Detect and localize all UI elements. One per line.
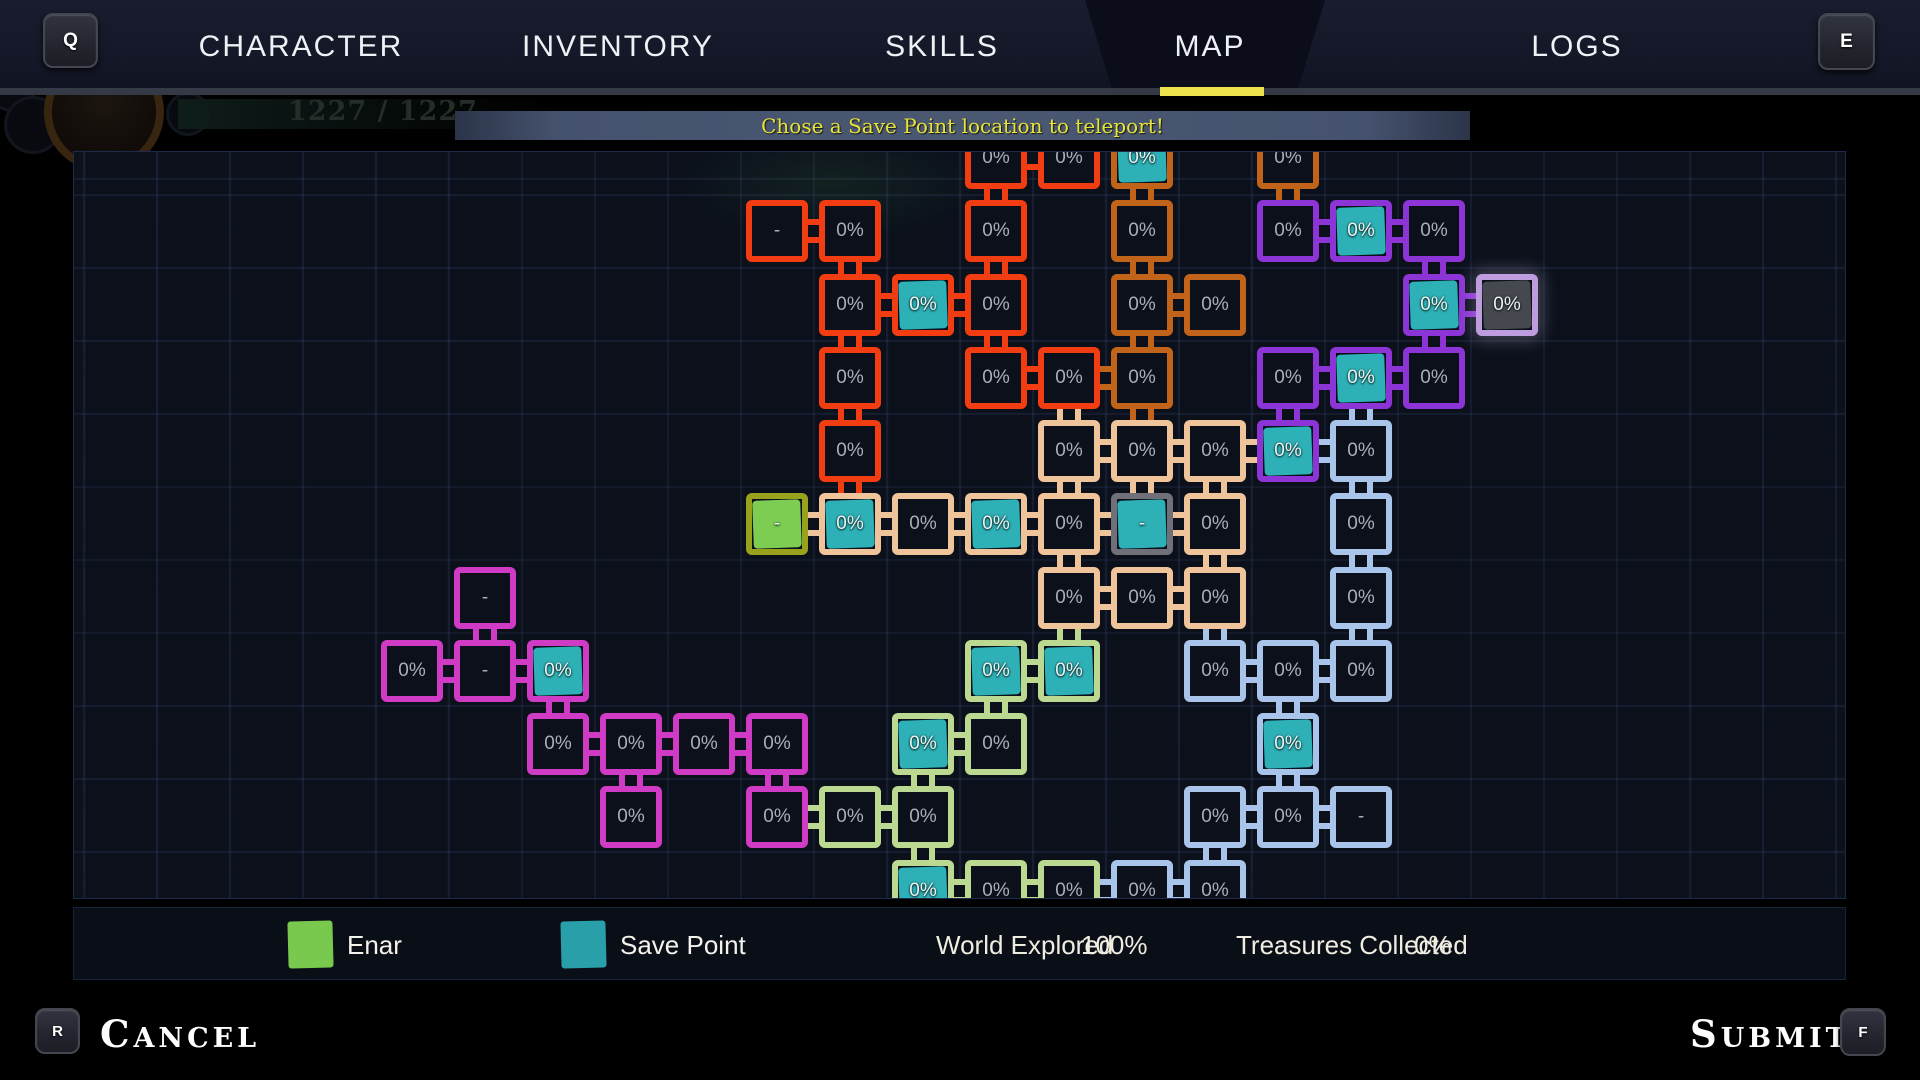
tab-logs[interactable]: LOGS [1531,30,1622,64]
room-explored-percent: 0% [892,860,954,900]
map-panel: 0%0%0%0%-0%0%0%0%0%0%0%0%0%0%0%0%0%0%0%0… [73,151,1846,899]
room-explored-percent: 0% [1038,567,1100,629]
map-room: 0% [1111,200,1173,262]
room-explored-percent: 0% [965,347,1027,409]
room-explored-percent: 0% [1257,420,1319,482]
key-hint-e[interactable]: E [1818,13,1875,70]
room-explored-percent: 0% [1111,200,1173,262]
room-explored-percent: 0% [892,274,954,336]
tab-map[interactable]: MAP [1174,30,1245,64]
room-explored-percent: 0% [1111,274,1173,336]
room-explored-percent: 0% [1330,640,1392,702]
room-explored-percent: 0% [1184,567,1246,629]
world-explored-value: 100% [1081,930,1148,961]
room-explored-percent: 0% [1403,347,1465,409]
map-room: 0% [819,786,881,848]
map-room: 0% [965,200,1027,262]
message-text: Chose a Save Point location to teleport! [761,114,1164,138]
room-explored-percent: 0% [1330,567,1392,629]
map-room: 0% [892,493,954,555]
map-room-save-point[interactable]: 0% [1257,420,1319,482]
room-explored-percent: 0% [1038,640,1100,702]
room-explored-percent: 0% [1184,640,1246,702]
map-room: 0% [673,713,735,775]
room-explored-percent: 0% [673,713,735,775]
room-explored-percent: 0% [892,493,954,555]
enar-legend-label: Enar [347,930,402,961]
room-explored-percent: 0% [1330,493,1392,555]
map-room: 0% [1184,274,1246,336]
map-room-save-point[interactable]: 0% [527,640,589,702]
map-room: 0% [1257,347,1319,409]
room-explored-percent: 0% [527,640,589,702]
top-nav-bar: CHARACTERINVENTORYSKILLSMAPLOGS [0,0,1920,95]
room-explored-percent: 0% [1330,420,1392,482]
map-room: - [1330,786,1392,848]
cancel-button[interactable]: CANCEL [100,1012,260,1056]
tab-skills[interactable]: SKILLS [885,30,999,64]
map-room: 0% [1111,860,1173,900]
room-explored-percent: - [746,493,808,555]
room-explored-percent: 0% [1184,860,1246,900]
map-room-save-point[interactable]: 0% [1330,347,1392,409]
room-explored-percent: 0% [1257,200,1319,262]
mp-value: 1227 / 1227 [288,96,478,127]
map-room-selected[interactable]: 0% [1476,274,1538,336]
room-explored-percent: 0% [965,200,1027,262]
room-explored-percent: 0% [1038,860,1100,900]
map-room: 0% [1111,420,1173,482]
map-room: 0% [965,151,1027,189]
room-explored-percent: 0% [1038,347,1100,409]
map-room: 0% [1184,493,1246,555]
map-room-save-point[interactable]: - [1111,493,1173,555]
room-explored-percent: 0% [965,274,1027,336]
map-room: 0% [819,274,881,336]
map-room: 0% [819,420,881,482]
room-explored-percent: - [454,567,516,629]
room-explored-percent: 0% [1184,786,1246,848]
map-room-enar: - [746,493,808,555]
map-room-save-point[interactable]: 0% [819,493,881,555]
map-room: 0% [892,786,954,848]
room-explored-percent: - [1111,493,1173,555]
key-hint-q[interactable]: Q [43,13,98,68]
map-room: 0% [965,347,1027,409]
map-room: 0% [1038,420,1100,482]
room-explored-percent: 0% [892,786,954,848]
map-room: 0% [1330,493,1392,555]
room-explored-percent: 0% [965,151,1027,189]
room-explored-percent: - [454,640,516,702]
room-explored-percent: 0% [965,640,1027,702]
map-room: - [746,200,808,262]
map-room: 0% [1330,420,1392,482]
tab-character[interactable]: CHARACTER [199,30,404,64]
room-explored-percent: 0% [819,200,881,262]
save-point-swatch-icon [560,920,606,968]
hud-orb-icon [4,96,62,154]
treasures-collected-value: 0% [1414,930,1452,961]
map-room: 0% [527,713,589,775]
room-explored-percent: 0% [527,713,589,775]
map-room: 0% [600,786,662,848]
map-room: 0% [965,860,1027,900]
room-explored-percent: 0% [1038,151,1100,189]
map-room: 0% [1184,640,1246,702]
map-room: 0% [1403,200,1465,262]
map-room: 0% [1184,786,1246,848]
map-room: 0% [1038,493,1100,555]
room-explored-percent: 0% [1330,200,1392,262]
map-room: 0% [1111,567,1173,629]
room-explored-percent: 0% [1111,347,1173,409]
map-room: 0% [819,200,881,262]
room-explored-percent: 0% [819,347,881,409]
map-room: 0% [746,786,808,848]
room-explored-percent: 0% [965,860,1027,900]
map-room: 0% [1184,420,1246,482]
room-explored-percent: 0% [1257,151,1319,189]
map-room-save-point[interactable]: 0% [1257,713,1319,775]
room-explored-percent: 0% [1111,420,1173,482]
enar-swatch-icon [287,920,333,968]
map-room: 0% [381,640,443,702]
map-room: 0% [1257,640,1319,702]
map-room: 0% [965,274,1027,336]
save-point-legend-label: Save Point [620,930,746,961]
room-explored-percent: 0% [1403,200,1465,262]
room-explored-percent: 0% [600,786,662,848]
map-room: 0% [600,713,662,775]
map-room: 0% [1111,347,1173,409]
map-room-save-point[interactable]: 0% [892,274,954,336]
map-room-save-point[interactable]: 0% [892,713,954,775]
map-room: 0% [1330,567,1392,629]
submit-button[interactable]: SUBMIT [1690,1012,1850,1056]
map-room-save-point[interactable]: 0% [892,860,954,900]
map-room: 0% [1403,347,1465,409]
room-explored-percent: 0% [1257,640,1319,702]
map-room: 0% [1038,860,1100,900]
map-room-save-point[interactable]: 0% [1330,200,1392,262]
map-room-save-point[interactable]: 0% [1038,640,1100,702]
room-explored-percent: 0% [1257,347,1319,409]
room-explored-percent: 0% [819,420,881,482]
room-explored-percent: 0% [381,640,443,702]
hud-swirl-icon [166,92,210,136]
room-explored-percent: 0% [819,274,881,336]
room-explored-percent: 0% [1038,420,1100,482]
map-screen: 1585 / 1585 1227 / 1227 CHARACTERINVENTO… [0,0,1920,1080]
room-explored-percent: 0% [1257,786,1319,848]
map-room-save-point[interactable]: 0% [965,493,1027,555]
map-room: - [454,567,516,629]
map-room: 0% [1038,151,1100,189]
room-explored-percent: 0% [1184,274,1246,336]
map-room: 0% [1184,567,1246,629]
room-explored-percent: 0% [1038,493,1100,555]
room-explored-percent: 0% [892,713,954,775]
room-explored-percent: 0% [1403,274,1465,336]
room-explored-percent: 0% [1111,860,1173,900]
room-explored-percent: 0% [746,786,808,848]
map-room: 0% [1257,786,1319,848]
room-explored-percent: 0% [600,713,662,775]
room-explored-percent: - [1330,786,1392,848]
map-room-save-point[interactable]: 0% [1111,151,1173,189]
room-explored-percent: 0% [965,493,1027,555]
key-hint-r[interactable]: R [35,1008,80,1054]
room-explored-percent: 0% [1111,151,1173,189]
map-room: 0% [746,713,808,775]
room-explored-percent: 0% [1111,567,1173,629]
room-explored-percent: 0% [746,713,808,775]
active-tab-underline [1160,87,1264,96]
map-room: - [454,640,516,702]
map-room: 0% [965,713,1027,775]
map-room: 0% [1038,347,1100,409]
room-explored-percent: 0% [1184,493,1246,555]
map-room: 0% [1330,640,1392,702]
legend-panel: Enar Save Point World Explored 100% Trea… [73,907,1846,980]
map-room: 0% [819,347,881,409]
room-explored-percent: 0% [1330,347,1392,409]
room-explored-percent: 0% [1476,274,1538,336]
map-room: 0% [1257,200,1319,262]
map-room: 0% [1257,151,1319,189]
room-explored-percent: 0% [965,713,1027,775]
map-room: 0% [1184,860,1246,900]
room-explored-percent: 0% [1257,713,1319,775]
message-bar: Chose a Save Point location to teleport! [455,111,1470,140]
room-explored-percent: 0% [819,493,881,555]
map-room: 0% [1111,274,1173,336]
room-explored-percent: 0% [1184,420,1246,482]
map-room-save-point[interactable]: 0% [965,640,1027,702]
map-room: 0% [1038,567,1100,629]
nav-divider [0,88,1920,95]
room-explored-percent: 0% [819,786,881,848]
map-room-save-point[interactable]: 0% [1403,274,1465,336]
room-explored-percent: - [746,200,808,262]
tab-inventory[interactable]: INVENTORY [522,30,714,64]
key-hint-f[interactable]: F [1840,1008,1886,1056]
